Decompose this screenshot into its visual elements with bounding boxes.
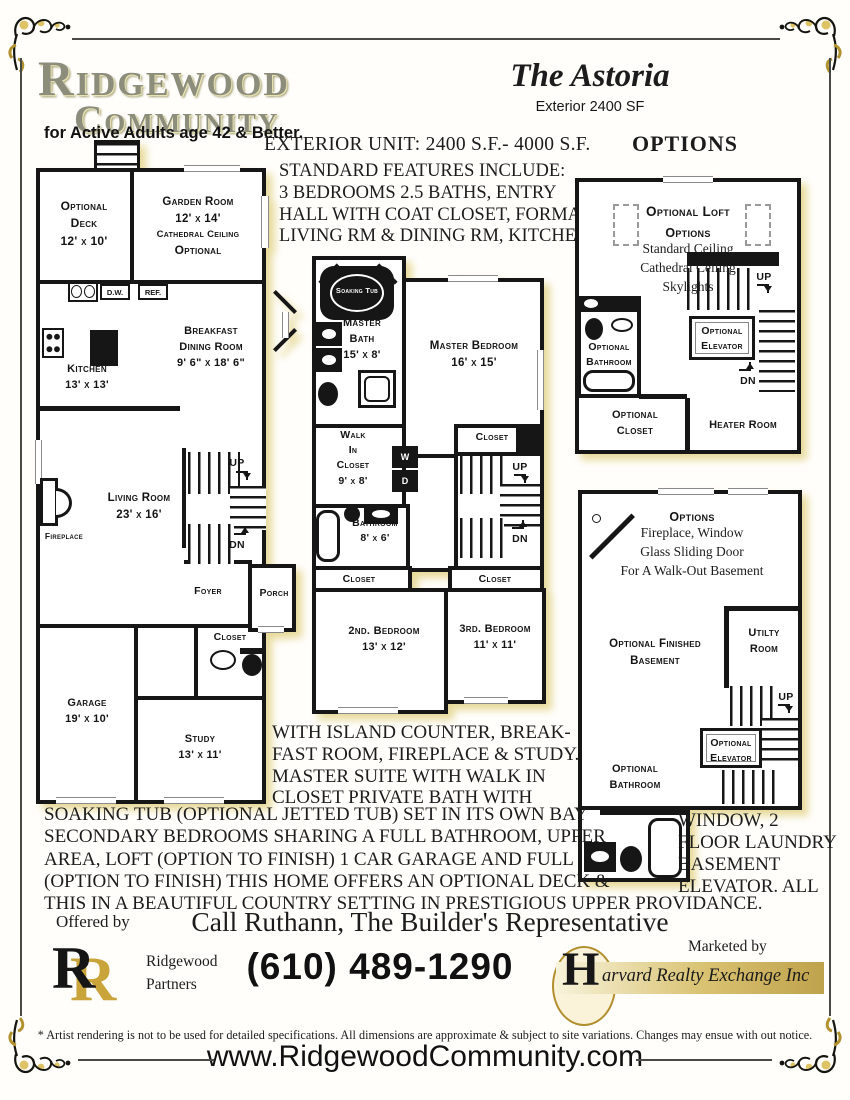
down-arrow-icon <box>234 526 246 535</box>
window <box>728 488 768 495</box>
fireplace-flue-icon <box>592 514 601 523</box>
model-name: The Astoria <box>420 58 760 95</box>
first-floor-plan: D.W. REF. Optional Deck 12' x 10' Garden… <box>34 140 300 808</box>
stairs-down-flight <box>460 518 504 558</box>
window <box>448 275 498 282</box>
marketed-by-label: Marketed by <box>688 938 767 956</box>
sink-icon <box>71 285 82 298</box>
living-room-label: Living Room 23' x 16' <box>80 490 198 523</box>
breakfast-label: Breakfast Dining Room 9' 6" x 18' 6" <box>158 324 264 372</box>
website-url: www.RidgewoodCommunity.com <box>0 1040 850 1074</box>
description-side: WINDOW, 2 FLOOR LAUNDRY BASEMENT ELEVATO… <box>678 810 837 898</box>
second-floor-plan: Soaking Tub W D Master Bath 15' x 8' Mas… <box>308 250 550 746</box>
dryer-icon: D <box>392 470 418 492</box>
deck-label: Optional Deck 12' x 10' <box>40 198 128 250</box>
partners-logo-black-letter: R <box>52 934 95 1003</box>
toilet-icon <box>585 318 603 340</box>
master-bedroom-label: Master Bedroom 16' x 15' <box>412 338 536 371</box>
heater-room-label: Heater Room <box>691 418 795 434</box>
toilet-icon <box>318 382 338 406</box>
closet-label: Closet <box>454 572 536 587</box>
closet-label: Closet <box>460 430 524 445</box>
optional-bathroom-label: Optional Bathroom <box>590 762 680 794</box>
up-label: UP <box>772 690 800 705</box>
study-label: Study 13' x 11' <box>160 732 240 764</box>
garden-room-label: Garden Room 12' x 14' <box>134 194 262 227</box>
description-full: SOAKING TUB (OPTIONAL JETTED TUB) SET IN… <box>44 804 763 915</box>
second-bedroom-label: 2nd. Bedroom 13' x 12' <box>328 624 440 656</box>
up-arrow-icon <box>514 474 526 483</box>
garden-ceiling-label: Cathedral Ceiling <box>134 228 262 242</box>
garage-door <box>56 797 116 804</box>
up-label: UP <box>504 460 536 475</box>
garage-label: Garage 19' x 10' <box>50 696 124 728</box>
flyer-page: RIDGEWOOD COMMUNITY for Active Adults ag… <box>0 0 850 1100</box>
window <box>282 312 289 338</box>
window <box>184 165 240 172</box>
toilet-icon <box>242 654 262 676</box>
refrigerator-label: REF. <box>138 284 168 300</box>
kitchen-island <box>90 330 118 366</box>
third-bedroom-label: 3rd. Bedroom 11' x 11' <box>446 622 544 654</box>
window <box>663 176 713 183</box>
down-label: DN <box>504 532 536 547</box>
washer-icon: W <box>392 446 418 468</box>
closet-label: Closet <box>200 630 260 645</box>
window <box>658 488 714 495</box>
options-list: Standard Ceiling Cathedral Ceiling Skyli… <box>611 240 765 297</box>
phone-number: (610) 489-1290 <box>230 946 530 988</box>
optional-elevator-label: Optional Elevator <box>700 736 762 766</box>
wall <box>724 606 802 611</box>
hall-area <box>134 624 198 700</box>
frame-left-rule <box>20 58 22 1016</box>
up-arrow-icon <box>778 704 790 713</box>
wall <box>685 398 690 452</box>
wall <box>639 394 687 399</box>
corner-flourish-top-right <box>778 12 842 76</box>
down-arrow-icon <box>739 362 751 371</box>
window <box>338 707 398 714</box>
model-header: The Astoria Exterior 2400 SF <box>420 58 760 115</box>
up-arrow-icon <box>236 471 248 480</box>
standard-features-text: STANDARD FEATURES INCLUDE: 3 BEDROOMS 2.… <box>279 161 592 248</box>
optional-bathroom-label: Optional Bathroom <box>577 340 641 370</box>
frame-top-rule <box>72 38 780 40</box>
down-label: DN <box>220 538 254 553</box>
stairs-flight <box>762 718 798 768</box>
window <box>464 697 508 704</box>
partners-name: Ridgewood Partners <box>146 950 217 997</box>
utility-room-label: Utilty Room <box>728 626 800 658</box>
options-heading: OPTIONS <box>618 131 752 157</box>
bathtub-icon <box>316 510 340 562</box>
website-left-rule <box>78 1059 214 1061</box>
fireplace-label: Fireplace <box>34 530 94 542</box>
stairs-flight <box>759 310 795 392</box>
bathroom-label: Bathroom 8' x 6' <box>340 516 410 546</box>
up-arrow-icon <box>757 284 769 293</box>
window <box>261 196 269 248</box>
exterior-unit-heading: EXTERIOR UNIT: 2400 S.F.- 4000 S.F. <box>264 134 591 156</box>
closet-label: Closet <box>324 572 394 587</box>
dishwasher-label: D.W. <box>100 284 130 300</box>
optional-closet-label: Optional Closet <box>589 408 681 440</box>
wall <box>40 406 180 411</box>
up-label: UP <box>220 456 254 471</box>
optional-loft-label: Optional Loft <box>625 202 751 222</box>
ridgewood-partners-logo: R R <box>52 934 142 1012</box>
up-label: UP <box>749 270 779 285</box>
optional-elevator-label: Optional Elevator <box>689 324 755 354</box>
shower-pan-icon <box>364 376 390 402</box>
powder-sink-icon <box>210 650 236 670</box>
model-subtitle: Exterior 2400 SF <box>420 99 760 115</box>
kitchen-label: Kitchen 13' x 13' <box>50 362 124 394</box>
harvard-logo-initial: H <box>562 942 599 997</box>
sink-icon <box>583 298 599 309</box>
master-bath-label: Master Bath 15' x 8' <box>330 316 394 364</box>
window <box>537 350 544 410</box>
website-right-rule <box>636 1059 772 1061</box>
sink-icon <box>611 318 633 332</box>
foyer-label: Foyer <box>186 584 230 599</box>
garden-optional-label: Optional <box>134 242 262 259</box>
porch-label: Porch <box>254 586 294 601</box>
down-arrow-icon <box>512 520 524 529</box>
description-mid: WITH ISLAND COUNTER, BREAK- FAST ROOM, F… <box>272 722 579 809</box>
bay-window-wall <box>273 290 297 314</box>
loft-plan: Optional Loft Options Standard Ceiling C… <box>575 176 803 456</box>
call-line: Call Ruthann, The Builder's Representati… <box>140 906 720 938</box>
offered-by-label: Offered by <box>56 912 130 932</box>
stairs-flight <box>722 770 778 804</box>
bathtub-icon <box>583 370 635 392</box>
options-list: Fireplace, Window Glass Sliding Door For… <box>602 524 782 581</box>
stove-icon <box>42 328 64 358</box>
stairs-up-flight <box>460 456 504 494</box>
sink-icon <box>84 285 95 298</box>
window <box>258 626 284 633</box>
down-label: DN <box>733 374 763 389</box>
optional-finished-basement-label: Optional Finished Basement <box>588 636 722 669</box>
soaking-tub-label: Soaking Tub <box>320 286 394 297</box>
walk-in-closet-label: Walk In Closet 9' x 8' <box>318 428 388 489</box>
harvard-name: arvard Realty Exchange Inc <box>602 966 809 987</box>
window <box>164 797 224 804</box>
